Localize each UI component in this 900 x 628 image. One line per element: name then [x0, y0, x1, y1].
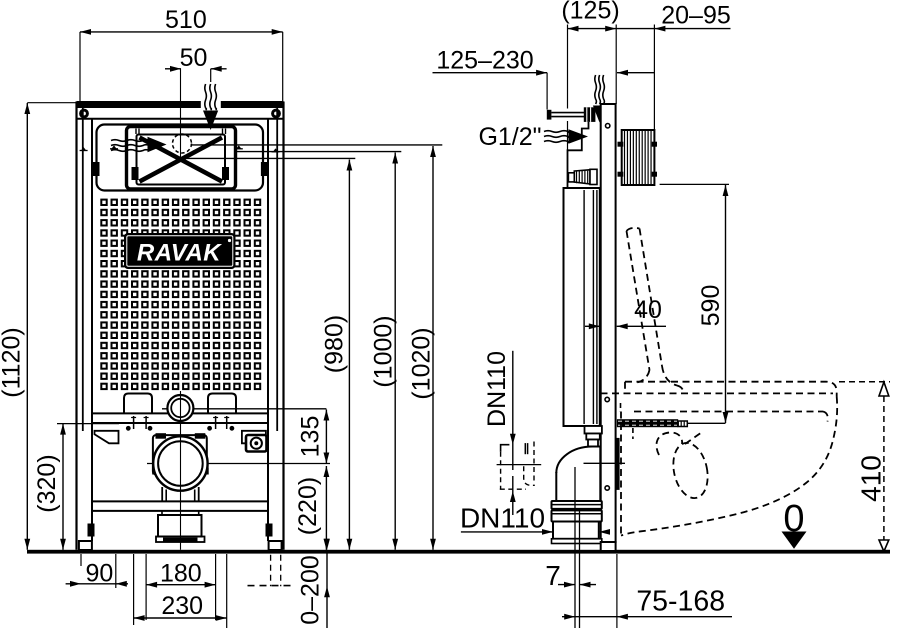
svg-text:135: 135 [297, 416, 325, 458]
svg-text:(1000): (1000) [370, 315, 398, 387]
svg-text:(980): (980) [321, 315, 349, 373]
svg-text:0–200: 0–200 [297, 555, 325, 625]
svg-text:180: 180 [160, 559, 202, 587]
svg-text:410: 410 [855, 455, 886, 502]
svg-text:125–230: 125–230 [436, 47, 533, 75]
svg-text:510: 510 [165, 6, 207, 34]
svg-text:G1/2": G1/2" [478, 123, 541, 151]
svg-text:RAVAK: RAVAK [137, 240, 222, 267]
svg-text:90: 90 [85, 559, 113, 587]
svg-text:(125): (125) [561, 0, 619, 24]
svg-text:590: 590 [697, 285, 725, 327]
svg-text:DN110: DN110 [460, 503, 545, 534]
svg-text:20–95: 20–95 [661, 1, 731, 29]
svg-text:(320): (320) [33, 454, 61, 512]
svg-text:(1120): (1120) [0, 327, 25, 397]
svg-text:50: 50 [180, 44, 208, 72]
svg-text:7: 7 [545, 560, 561, 591]
svg-text:230: 230 [161, 592, 203, 620]
svg-text:(1020): (1020) [407, 327, 435, 399]
svg-text:DN110: DN110 [483, 351, 511, 427]
svg-text:75-168: 75-168 [636, 586, 725, 618]
svg-text:(220): (220) [294, 477, 322, 535]
